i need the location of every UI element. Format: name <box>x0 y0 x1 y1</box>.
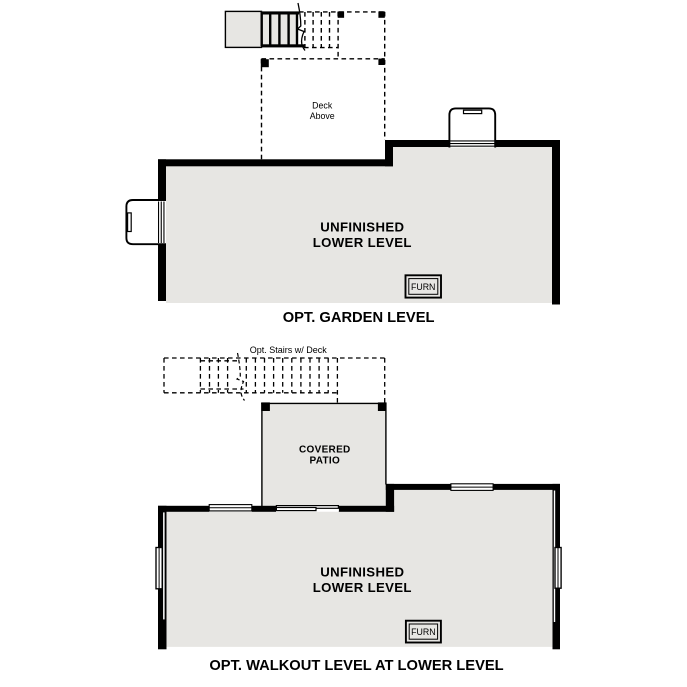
svg-text:FURN: FURN <box>411 282 435 292</box>
svg-text:Opt. Stairs w/ Deck: Opt. Stairs w/ Deck <box>250 345 328 355</box>
svg-text:LOWER LEVEL: LOWER LEVEL <box>313 235 412 250</box>
svg-text:COVERED: COVERED <box>299 445 351 456</box>
svg-text:FURN: FURN <box>411 627 435 637</box>
svg-text:UNFINISHED: UNFINISHED <box>320 220 404 235</box>
svg-text:PATIO: PATIO <box>310 456 341 467</box>
svg-text:Above: Above <box>310 111 335 121</box>
svg-text:OPT. WALKOUT LEVEL AT LOWER LE: OPT. WALKOUT LEVEL AT LOWER LEVEL <box>209 658 503 674</box>
svg-text:LOWER LEVEL: LOWER LEVEL <box>313 580 412 595</box>
svg-text:UNFINISHED: UNFINISHED <box>320 565 404 580</box>
svg-text:OPT. GARDEN LEVEL: OPT. GARDEN LEVEL <box>283 310 435 326</box>
svg-text:Deck: Deck <box>312 101 333 111</box>
